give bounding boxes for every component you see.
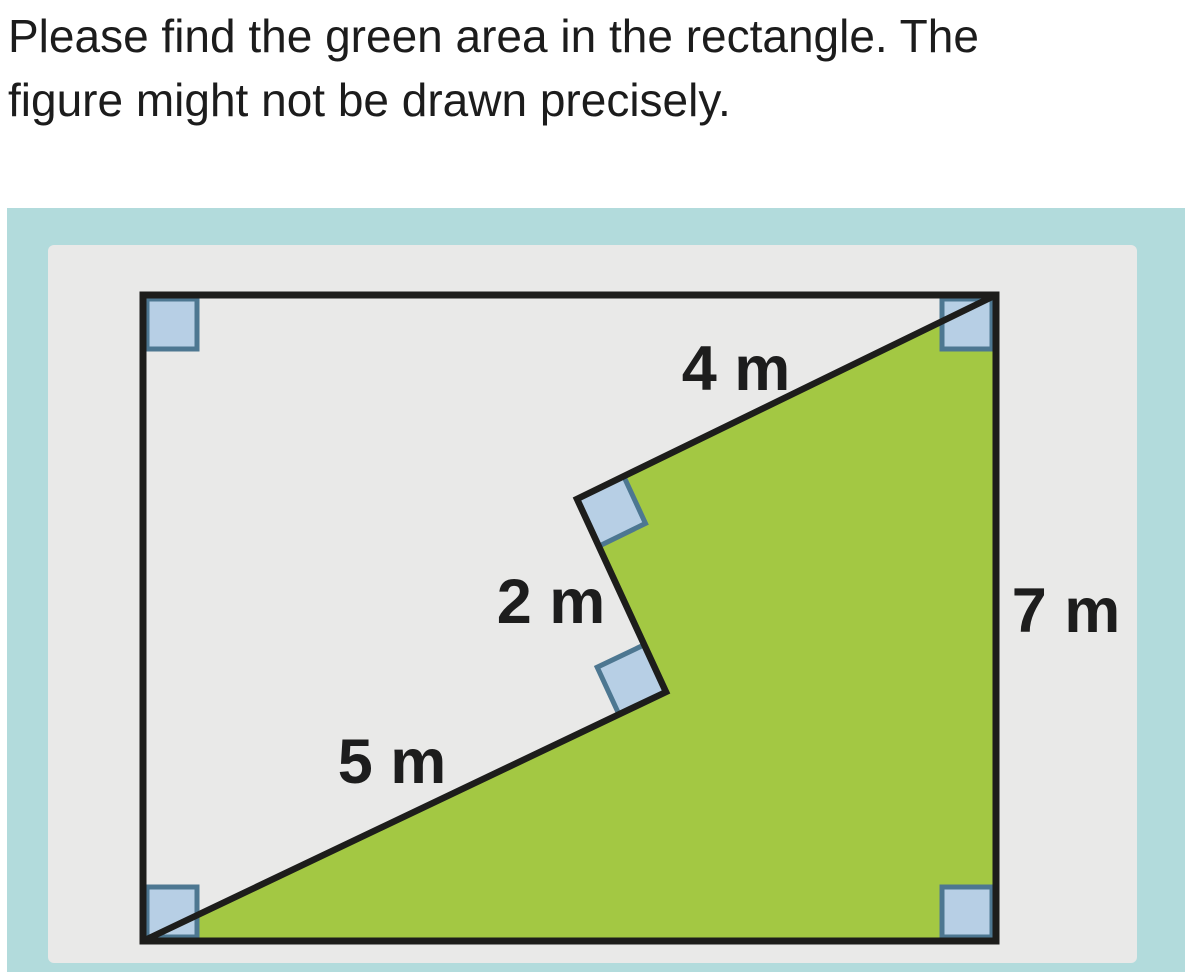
side-label-5m: 5 m: [338, 726, 447, 798]
side-label-4m: 4 m: [682, 333, 791, 405]
right-angle-marker-top-left: [147, 299, 197, 349]
side-label-2m: 2 m: [497, 566, 606, 638]
side-label-7m: 7 m: [1012, 575, 1121, 647]
right-angle-marker-bottom-right: [942, 887, 992, 937]
geometry-figure: [0, 0, 1189, 972]
